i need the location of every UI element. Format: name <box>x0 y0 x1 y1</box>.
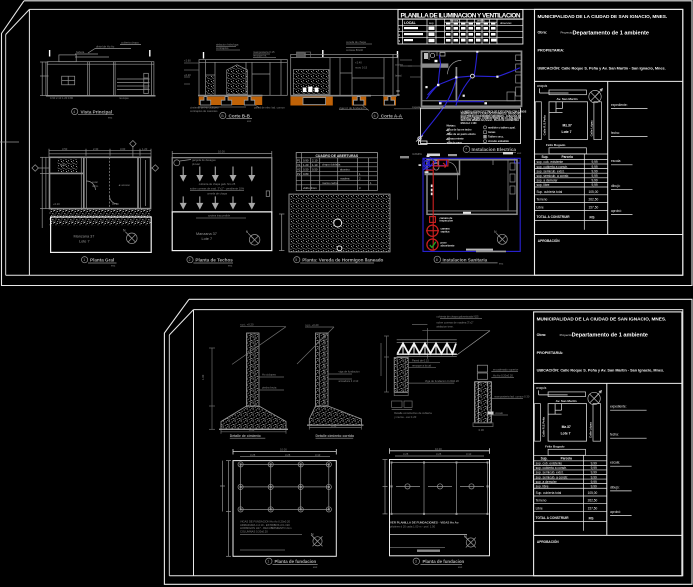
svg-text:madera: madera <box>340 176 350 180</box>
svg-text:correas 80x40: correas 80x40 <box>346 48 364 52</box>
svg-text:CUADRO DE ABERTURAS: CUADRO DE ABERTURAS <box>315 154 358 158</box>
svg-text:10.00: 10.00 <box>280 448 287 452</box>
svg-text:sobre correas de madera 3"x2": sobre correas de madera 3"x2" <box>436 320 473 324</box>
svg-text:lavad.: lavad. <box>395 74 402 78</box>
svg-text:0.80: 0.80 <box>303 172 309 176</box>
svg-text:Ho ciclopeo: Ho ciclopeo <box>262 373 277 377</box>
svg-text:boca de luz en techo: boca de luz en techo <box>447 129 472 132</box>
svg-text:baño: baño <box>60 163 66 167</box>
svg-text:n.p.t. +0.20: n.p.t. +0.20 <box>240 323 254 327</box>
svg-text:1.20: 1.20 <box>303 163 309 167</box>
svg-text:marco cedro: marco cedro <box>322 181 338 185</box>
svg-text:1.20: 1.20 <box>142 147 148 151</box>
svg-text:V1: V1 <box>297 163 301 167</box>
svg-text:Corte A-A: Corte A-A <box>381 113 403 118</box>
svg-text:P1: P1 <box>297 158 301 162</box>
svg-text:viga de fundacion: viga de fundacion <box>339 370 361 374</box>
svg-text:cubierta chapa: cubierta chapa <box>121 41 139 45</box>
svg-text:encadenado superior: encadenado superior <box>493 368 518 372</box>
svg-text:Planta de fundacion: Planta de fundacion <box>423 559 465 564</box>
svg-text:◄ acceso: ◄ acceso <box>118 184 130 187</box>
svg-text:Manzana 37: Manzana 37 <box>196 232 217 236</box>
svg-text:medidor y tablero ppal.: medidor y tablero ppal. <box>488 126 516 129</box>
svg-text:cubierta de chapa galvanizada: cubierta de chapa galvanizada N25 <box>436 315 479 319</box>
svg-text:0.90: 0.90 <box>303 158 309 162</box>
svg-text:10.00: 10.00 <box>218 149 225 153</box>
svg-text:esc: esc <box>458 566 463 569</box>
svg-text:RAMPA: RAMPA <box>413 152 423 156</box>
svg-text:Vista Principal: Vista Principal <box>81 109 113 114</box>
svg-text:ilumina.: ilumina. <box>450 19 459 23</box>
svg-text:revoque int.: revoque int. <box>253 53 267 57</box>
svg-text:azotea inaccesible: azotea inaccesible <box>208 214 231 218</box>
svg-text:esc: esc <box>247 120 252 123</box>
svg-text:gargola de desague: gargola de desague <box>192 158 216 162</box>
svg-text:observac.: observac. <box>500 21 512 25</box>
svg-text:Tablero secc.: Tablero secc. <box>488 136 504 139</box>
svg-text:2.10: 2.10 <box>312 158 318 162</box>
svg-text:caja de paso: caja de paso <box>447 142 462 145</box>
svg-text:SECCION MINIMA 2x1,5mm2 - PILA: SECCION MINIMA 2x1,5mm2 - PILAR DE ACOME… <box>461 119 520 122</box>
svg-text:Planta: Vereda de Hormigon lla: Planta: Vereda de Hormigon llaneado <box>302 258 383 263</box>
svg-text:sup: sup <box>429 21 434 25</box>
svg-text:Instalacion Sanitaria: Instalacion Sanitaria <box>443 257 488 262</box>
svg-text:cimiento de Ho ciclopeo: cimiento de Ho ciclopeo <box>190 105 219 109</box>
svg-text:Lote 7: Lote 7 <box>79 239 90 243</box>
svg-text:3.25: 3.25 <box>250 453 256 457</box>
svg-text:2: 2 <box>189 258 191 262</box>
svg-text:3.00: 3.00 <box>120 147 126 151</box>
svg-text:pilotines d 20 cada 1.00 m - p: pilotines d 20 cada 1.00 m - prof. 1.50 <box>390 524 436 528</box>
svg-text:Detalle de cimiento: Detalle de cimiento <box>230 434 261 438</box>
svg-text:llave de un punto efecto: llave de un punto efecto <box>447 133 476 136</box>
svg-text:esc: esc <box>517 152 522 155</box>
svg-text:Detalle constructivo de cubier: Detalle constructivo de cubierta <box>394 411 432 415</box>
svg-text:Planta Gral: Planta Gral <box>90 258 114 263</box>
svg-text:tomacorriente: tomacorriente <box>447 138 464 141</box>
svg-text:esc: esc <box>228 264 233 267</box>
svg-text:Viga de fundacion 0.20x0.20: Viga de fundacion 0.20x0.20 <box>425 379 460 383</box>
svg-text:septica: septica <box>441 229 450 233</box>
svg-text:vidrio 4mm: vidrio 4mm <box>303 186 317 190</box>
svg-text:Corte B-B: Corte B-B <box>229 113 251 118</box>
svg-text:+2.40: +2.40 <box>355 61 362 65</box>
svg-text:Planta de Techos: Planta de Techos <box>195 258 233 263</box>
svg-text:absorbente: absorbente <box>441 243 456 247</box>
svg-text:contrapiso: contrapiso <box>216 46 229 50</box>
svg-text:±0.00: ±0.00 <box>112 202 119 206</box>
svg-text:6: 6 <box>374 114 376 118</box>
svg-text:zocalo: zocalo <box>495 411 503 415</box>
svg-text:dorm.: dorm. <box>92 184 99 188</box>
svg-text:2.30: 2.30 <box>93 147 99 151</box>
svg-text:Ho Ao 0.20x0.20: Ho Ao 0.20x0.20 <box>493 373 513 377</box>
svg-text:3: 3 <box>415 560 417 564</box>
svg-text:4: 4 <box>73 110 75 114</box>
svg-text:0.50: 0.50 <box>303 167 309 171</box>
svg-text:esc: esc <box>499 263 504 266</box>
svg-text:babeta: babeta <box>76 50 85 54</box>
svg-text:circuito embutido: circuito embutido <box>488 140 509 143</box>
svg-text:3.10: 3.10 <box>466 452 472 456</box>
svg-text:Pared de 0.15: Pared de 0.15 <box>412 359 429 363</box>
svg-text:n.p.t. +0.20: n.p.t. +0.20 <box>305 323 319 327</box>
svg-text:0.50: 0.50 <box>312 167 318 171</box>
svg-text:0.60: 0.60 <box>249 428 255 432</box>
svg-text:alumino: alumino <box>340 167 350 171</box>
svg-text:1: 1 <box>267 560 269 564</box>
svg-text:PLANILLA DE ILUMINACION Y VENT: PLANILLA DE ILUMINACION Y VENTILACION <box>401 12 521 19</box>
svg-text:COLUMNAS 0.20x0.20: COLUMNAS 0.20x0.20 <box>240 529 268 533</box>
svg-text:Instalacion Electrica: Instalacion Electrica <box>472 147 517 152</box>
svg-text:VER PLANILLA DE FUNDACIONES -: VER PLANILLA DE FUNDACIONES - VIGAS Ho A… <box>390 521 459 525</box>
svg-text:Notas:: Notas: <box>447 123 456 127</box>
svg-text:esc: esc <box>108 117 113 120</box>
svg-text:tomas: tomas <box>488 131 496 134</box>
svg-text:esc: esc <box>111 264 116 267</box>
svg-text:inspeccion: inspeccion <box>440 219 454 223</box>
svg-text:Lote 7: Lote 7 <box>202 237 213 241</box>
svg-text:P2: P2 <box>297 172 301 176</box>
svg-text:7: 7 <box>465 148 467 152</box>
svg-text:1: 1 <box>83 258 85 262</box>
svg-text:muro 0.15: muro 0.15 <box>355 66 368 70</box>
svg-text:ESCALA 1:100: ESCALA 1:100 <box>461 122 478 125</box>
svg-text:cubierta de chapa galv. Nro 25: cubierta de chapa galv. Nro 25 <box>199 182 236 186</box>
svg-text:contrapiso de cascotes: contrapiso de cascotes <box>190 109 218 113</box>
svg-text:0.30: 0.30 <box>479 428 485 432</box>
svg-text:0.50: 0.50 <box>331 424 337 428</box>
svg-text:Detalle cimiento corrido: Detalle cimiento corrido <box>316 434 355 438</box>
svg-text:+2.60: +2.60 <box>184 59 191 63</box>
svg-text:Planta de fundacion: Planta de fundacion <box>275 559 317 564</box>
svg-text:1.00: 1.00 <box>201 374 205 380</box>
svg-text:esc: esc <box>313 566 318 569</box>
svg-text:chapa doblada: chapa doblada <box>322 163 341 167</box>
svg-text:sobre correas de mad. 3"x2" -: sobre correas de mad. 3"x2" - pendiente … <box>190 186 245 190</box>
svg-text:armadura 4 d 10: armadura 4 d 10 <box>339 379 359 383</box>
svg-text:10.00: 10.00 <box>435 447 442 451</box>
svg-text:0.90 2.10 1.20 0.80: 0.90 2.10 1.20 0.80 <box>50 96 74 100</box>
svg-text:3.10: 3.10 <box>315 453 321 457</box>
svg-text:3.50: 3.50 <box>62 147 68 151</box>
svg-text:viga inf. de fundacion: viga inf. de fundacion <box>339 106 365 110</box>
svg-text:LOCAL: LOCAL <box>404 21 416 25</box>
svg-text:1.10: 1.10 <box>312 163 318 167</box>
svg-text:cenefa de chapa: cenefa de chapa <box>346 40 366 44</box>
svg-text:3.25: 3.25 <box>436 452 442 456</box>
svg-text:piedra bruta: piedra bruta <box>262 386 277 390</box>
svg-text:pluvial: pluvial <box>192 162 200 166</box>
svg-text:pared de elev. lad. comun: pared de elev. lad. comun <box>254 105 285 109</box>
svg-text:ventila.: ventila. <box>477 19 485 23</box>
svg-text:aislacion hidrofuga: aislacion hidrofuga <box>216 42 239 46</box>
svg-text:aislacion term.: aislacion term. <box>436 324 454 328</box>
svg-text:3.25: 3.25 <box>403 452 409 456</box>
svg-text:Manzana 37: Manzana 37 <box>74 234 95 238</box>
svg-text:revoque: revoque <box>119 96 129 100</box>
svg-text:5: 5 <box>295 258 297 262</box>
svg-text:mamposteria lad. comun 0.30: mamposteria lad. comun 0.30 <box>494 394 530 398</box>
svg-text:8: 8 <box>436 258 438 262</box>
svg-text:y muros - esc 1:20: y muros - esc 1:20 <box>394 415 417 419</box>
svg-text:+0.20: +0.20 <box>53 202 60 206</box>
svg-text:cocina: cocina <box>395 63 403 67</box>
svg-text:zapata: zapata <box>412 105 421 109</box>
svg-text:revoque a la cal: revoque a la cal <box>412 364 431 368</box>
svg-text:V2: V2 <box>297 167 301 171</box>
svg-text:3.25: 3.25 <box>285 453 291 457</box>
svg-text:cenefa de chapa: cenefa de chapa <box>207 191 227 195</box>
svg-text:+0.20: +0.20 <box>184 73 191 77</box>
svg-text:estar: estar <box>92 180 98 184</box>
svg-text:mamposteria 0.15: mamposteria 0.15 <box>253 50 275 54</box>
svg-text:dintel de Ho Ao: dintel de Ho Ao <box>96 45 115 49</box>
